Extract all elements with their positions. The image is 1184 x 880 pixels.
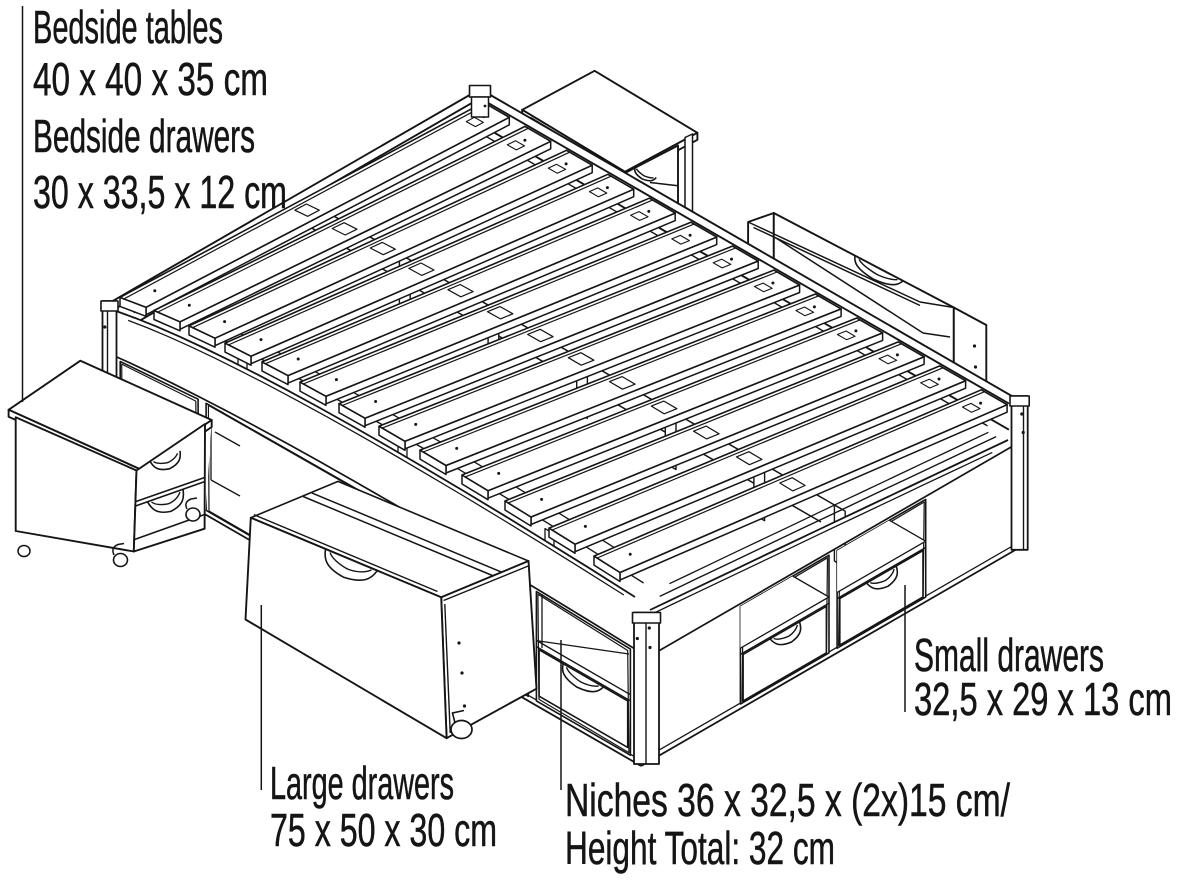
svg-text:Height Total: 32 cm: Height Total: 32 cm <box>565 822 835 874</box>
svg-text:30 x 33,5 x 12 cm: 30 x 33,5 x 12 cm <box>33 166 287 218</box>
svg-text:Bedside tables: Bedside tables <box>33 1 223 53</box>
svg-text:40 x 40 x 35 cm: 40 x 40 x 35 cm <box>33 53 268 105</box>
svg-text:Niches 36 x 32,5 x (2x)15 cm/: Niches 36 x 32,5 x (2x)15 cm/ <box>565 774 1010 826</box>
svg-text:Large drawers: Large drawers <box>270 757 454 809</box>
svg-text:32,5 x 29 x 13 cm: 32,5 x 29 x 13 cm <box>914 673 1172 725</box>
svg-text:75 x 50 x 30 cm: 75 x 50 x 30 cm <box>270 804 497 856</box>
svg-text:Bedside drawers: Bedside drawers <box>33 110 255 162</box>
